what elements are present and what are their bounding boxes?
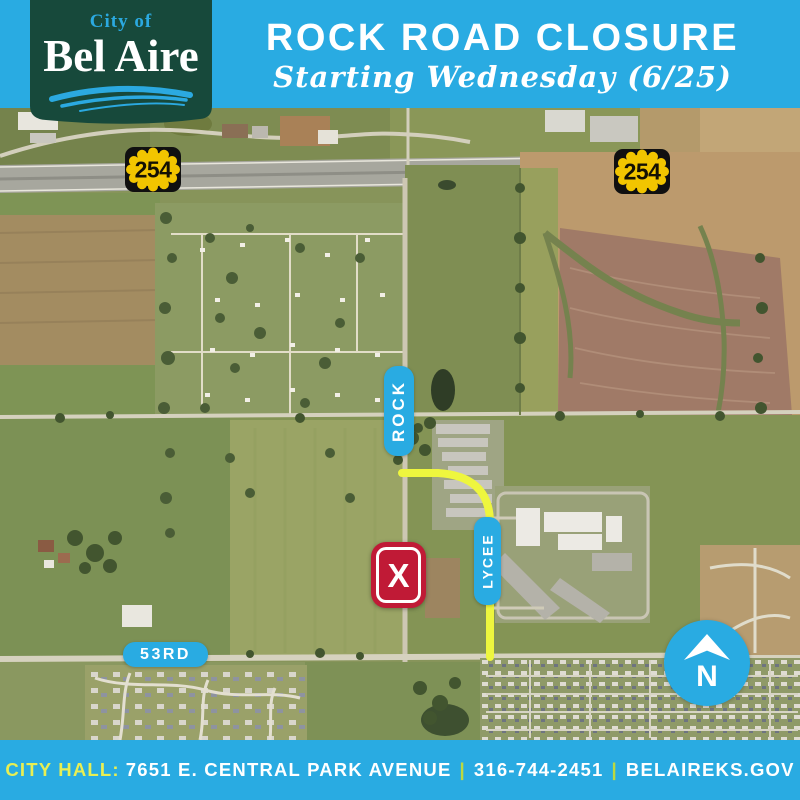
north-letter: N	[696, 662, 718, 692]
footer-separator: |	[460, 759, 466, 780]
highway-shield-254-west: 254	[124, 146, 182, 193]
shield-label: 254	[624, 159, 662, 185]
aerial-map: 254 254 ROCK LYCEE 53RD X	[0, 108, 800, 740]
road-label-rock-text: ROCK	[389, 380, 409, 442]
north-arrow-icon	[684, 634, 730, 660]
page-title: ROCK ROAD CLOSURE	[205, 0, 800, 57]
flyer-page: ROCK ROAD CLOSURE Starting Wednesday (6/…	[0, 0, 800, 800]
north-indicator: N	[664, 620, 750, 706]
highway-shield-254-east: 254	[613, 148, 671, 195]
road-label-lycee: LYCEE	[474, 517, 501, 605]
footer-separator: |	[612, 759, 618, 780]
road-label-lycee-text: LYCEE	[480, 533, 496, 588]
footer-website: BELAIREKS.GOV	[626, 759, 795, 780]
road-label-53rd-text: 53RD	[140, 646, 191, 664]
page-subtitle: Starting Wednesday (6/25)	[205, 57, 800, 92]
footer-address: 7651 E. CENTRAL PARK AVENUE	[126, 759, 452, 780]
wave-icon	[48, 85, 194, 113]
closure-x-glyph: X	[387, 559, 409, 592]
road-closure-x-icon: X	[371, 542, 426, 608]
road-label-rock: ROCK	[384, 366, 414, 456]
header-title-area: ROCK ROAD CLOSURE Starting Wednesday (6/…	[205, 0, 800, 92]
road-label-53rd: 53RD	[123, 642, 208, 667]
footer-bar: CITY HALL:7651 E. CENTRAL PARK AVENUE|31…	[0, 740, 800, 800]
logo-bel-aire: Bel Aire	[30, 30, 212, 82]
shield-label: 254	[135, 157, 173, 183]
footer-prefix: CITY HALL:	[5, 759, 119, 780]
city-logo-banner: City of Bel Aire	[30, 0, 212, 130]
footer-contact-line: CITY HALL:7651 E. CENTRAL PARK AVENUE|31…	[5, 759, 794, 781]
footer-phone: 316-744-2451	[474, 759, 604, 780]
